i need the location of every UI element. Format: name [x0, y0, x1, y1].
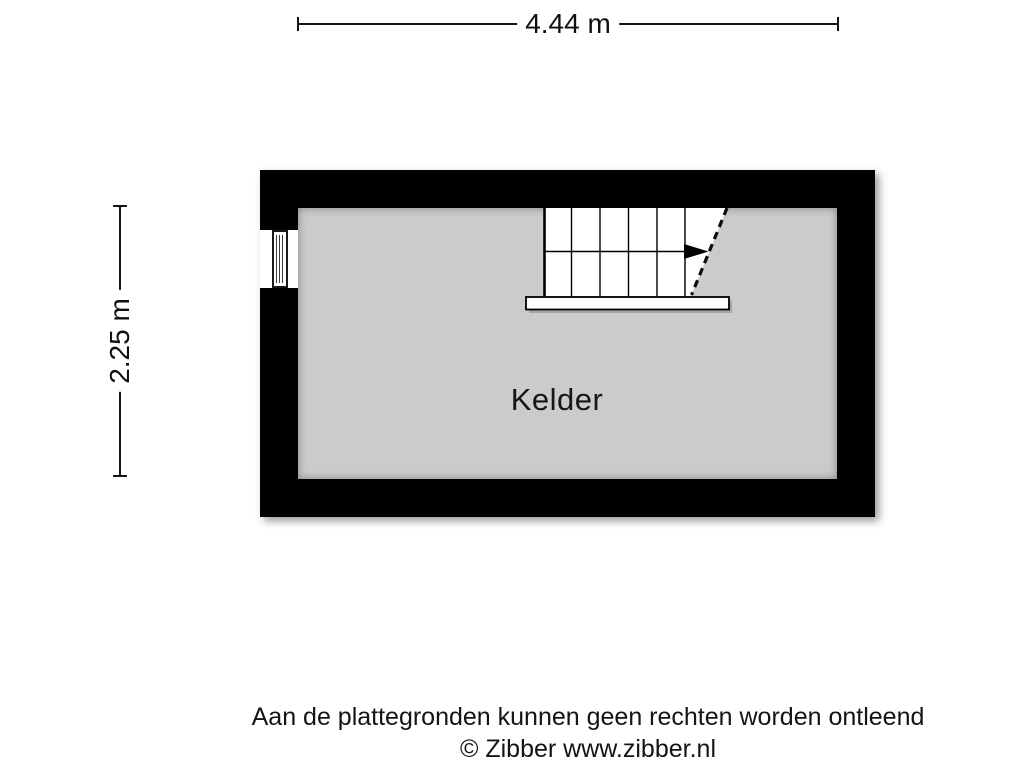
- window-pane: [279, 235, 280, 283]
- footer-copyright: © Zibber www.zibber.nl: [252, 733, 925, 765]
- staircase: [520, 204, 735, 316]
- footer-disclaimer: Aan de plattegronden kunnen geen rechten…: [252, 701, 925, 733]
- height-dimension-label: 2.25 m: [104, 290, 136, 392]
- width-dimension-line: 4.44 m: [297, 12, 839, 36]
- window-symbol: [260, 230, 298, 288]
- dimension-tick-bottom: [113, 475, 127, 477]
- height-dimension-line: 2.25 m: [108, 205, 132, 477]
- width-dimension-label: 4.44 m: [517, 8, 619, 40]
- window-frame: [272, 230, 288, 288]
- dimension-tick-right: [837, 17, 839, 31]
- footer: Aan de plattegronden kunnen geen rechten…: [252, 701, 925, 765]
- stair-landing: [526, 297, 729, 310]
- window-pane: [282, 235, 283, 283]
- window-pane: [276, 235, 277, 283]
- room-label: Kelder: [511, 382, 604, 418]
